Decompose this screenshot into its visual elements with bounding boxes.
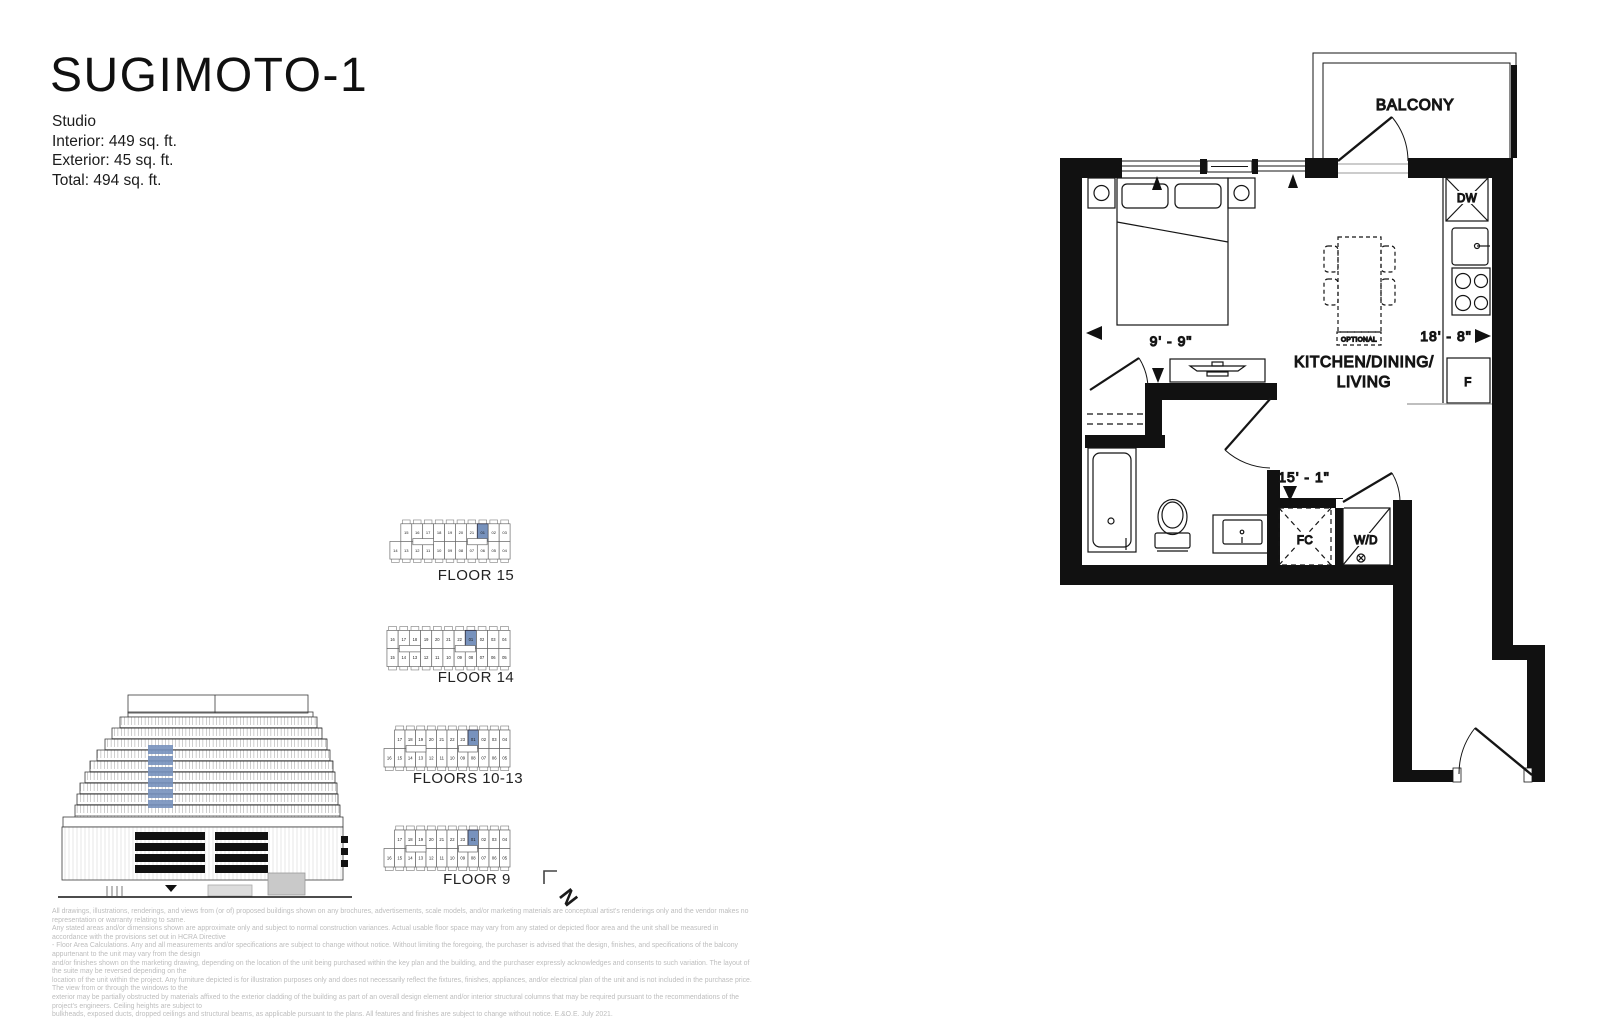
- arrow-east: [1475, 329, 1491, 343]
- balcony-tick: [467, 626, 475, 630]
- bathroom: [1088, 398, 1271, 553]
- key-plan-unit-number: 18: [408, 737, 413, 742]
- key-plan-unit-number: 10: [437, 548, 442, 553]
- disclaimer-line: location of the unit within the project.…: [52, 977, 752, 994]
- key-plan-unit-number: 16: [415, 530, 420, 535]
- key-plan-unit-number: 12: [429, 755, 434, 760]
- key-plan-unit-number: 17: [397, 737, 402, 742]
- balcony-tick: [400, 626, 408, 630]
- key-plan-floors-10-13: 1718192021222301020304161514131211100908…: [382, 722, 512, 772]
- balcony-door: [1338, 117, 1408, 173]
- key-plan-unit-number: 07: [480, 655, 485, 660]
- dim-hall-length: 15' - 1": [1278, 469, 1329, 485]
- key-plan-unit-number: 15: [397, 855, 402, 860]
- unit-type: Studio: [52, 112, 177, 132]
- bathroom-door: [1225, 398, 1271, 450]
- key-plan-unit-number: 06: [492, 855, 497, 860]
- core-notch: [413, 539, 434, 545]
- key-plan-unit-number: 05: [502, 655, 507, 660]
- key-plan-unit-number: 22: [450, 837, 455, 842]
- closet: [1087, 358, 1148, 424]
- washer-dryer-closet: [1336, 473, 1400, 565]
- kitchen-dining-living-label-1: KITCHEN/DINING/: [1294, 354, 1434, 371]
- interior-area: Interior: 449 sq. ft.: [52, 132, 177, 152]
- key-plan-unit-number: 18: [437, 530, 442, 535]
- lamp-left: [1094, 186, 1109, 201]
- key-plan-unit-number: 15: [397, 755, 402, 760]
- entry-notch: [459, 846, 478, 853]
- floor-plan: BALCONY: [1040, 30, 1560, 790]
- balcony-tick: [402, 520, 410, 524]
- balcony-tick: [459, 726, 467, 730]
- balcony-tick: [468, 520, 476, 524]
- balcony-label: BALCONY: [1376, 97, 1454, 114]
- optional-label: OPTIONAL: [1341, 337, 1377, 344]
- key-plan-unit-number: 02: [481, 837, 486, 842]
- disclaimer-line: exterior may be partially obstructed by …: [52, 994, 752, 1011]
- lamp-right: [1234, 186, 1249, 201]
- key-plan-unit-number: 04: [502, 637, 507, 642]
- entry-notch: [459, 746, 478, 753]
- disclaimer-line: - Floor Area Calculations. Any and all m…: [52, 942, 752, 959]
- key-plan-unit-number: 05: [502, 855, 507, 860]
- balcony-tick: [427, 826, 435, 830]
- balcony-tick: [448, 726, 456, 730]
- key-plan-unit-number: 05: [491, 548, 496, 553]
- balcony-tick: [501, 726, 509, 730]
- dim-living-length: 18' - 8": [1420, 328, 1471, 344]
- key-plan-unit-number: 21: [439, 837, 444, 842]
- balcony-tick: [406, 726, 414, 730]
- vanity: [1213, 515, 1268, 553]
- balcony-tick: [438, 726, 446, 730]
- balcony-tick: [389, 626, 397, 630]
- key-plan-unit-number: 13: [418, 755, 423, 760]
- arrow-south-1: [1152, 368, 1164, 383]
- balcony-tick: [406, 826, 414, 830]
- balcony-tick: [445, 626, 453, 630]
- balcony-tick: [501, 626, 509, 630]
- balcony-tick: [459, 826, 467, 830]
- key-plan-unit-number: 23: [460, 837, 465, 842]
- key-plan-unit-number: 18: [408, 837, 413, 842]
- key-plan-unit-number: 23: [460, 737, 465, 742]
- window-arrow-right: [1288, 174, 1298, 188]
- total-area: Total: 494 sq. ft.: [52, 171, 177, 191]
- exterior-area: Exterior: 45 sq. ft.: [52, 151, 177, 171]
- key-plan-unit-number: 08: [471, 755, 476, 760]
- key-plan-floor-14: 1617181920212201020304151413121110090807…: [385, 623, 512, 671]
- key-plan-unit-number: 19: [448, 530, 453, 535]
- entry-notch: [467, 539, 487, 545]
- key-plan-unit-number: 14: [401, 655, 406, 660]
- fridge-label: F: [1464, 377, 1471, 389]
- core-notch: [406, 746, 426, 753]
- key-plan-unit-number: 16: [387, 855, 392, 860]
- key-plan-label-floor-14: FLOOR 14: [391, 669, 561, 686]
- key-plan-unit-number: 20: [435, 637, 440, 642]
- disclaimer-line: bulkheads, exposed ducts, dropped ceilin…: [52, 1011, 752, 1018]
- key-plan-unit-number: 12: [429, 855, 434, 860]
- key-plan-unit-number: 03: [492, 837, 497, 842]
- dishwasher-label: DW: [1457, 193, 1477, 205]
- key-plan-unit-number: 06: [492, 755, 497, 760]
- balcony-tick: [422, 626, 430, 630]
- bathtub: [1088, 448, 1136, 552]
- entrance-detail: [107, 885, 177, 896]
- key-plan-unit-number: 14: [408, 755, 413, 760]
- balcony-tick: [427, 726, 435, 730]
- key-plan-unit-number: 14: [393, 548, 398, 553]
- key-plan-unit-number: 16: [390, 637, 395, 642]
- key-plan-unit-number: 08: [459, 548, 464, 553]
- key-plan-unit-number: 13: [404, 548, 409, 553]
- balcony-tick: [490, 520, 498, 524]
- balcony-tick: [417, 726, 425, 730]
- unit-stats: Studio Interior: 449 sq. ft. Exterior: 4…: [52, 112, 177, 190]
- podium-block-2: [208, 885, 252, 896]
- key-plan-unit-number: 10: [450, 855, 455, 860]
- key-plan-unit-number: 13: [418, 855, 423, 860]
- key-plan-unit-number: 08: [469, 655, 474, 660]
- balcony-tick: [424, 520, 432, 524]
- balcony-tick: [469, 726, 477, 730]
- key-plan-unit-number: 05: [502, 755, 507, 760]
- core-notch: [399, 646, 420, 652]
- key-plan-unit-number: 21: [439, 737, 444, 742]
- podium-block-1: [268, 873, 305, 895]
- key-plan-unit-number: 01: [481, 530, 486, 535]
- key-plan-unit-number: 21: [470, 530, 475, 535]
- key-plan-unit-number: 11: [435, 655, 440, 660]
- page-title: SUGIMOTO-1: [50, 48, 368, 103]
- entry-notch: [455, 646, 475, 652]
- balcony-tick: [456, 626, 464, 630]
- tv-console: [1170, 359, 1265, 382]
- key-plan-unit-number: 02: [480, 637, 485, 642]
- floorplan-sheet: SUGIMOTO-1 Studio Interior: 449 sq. ft. …: [0, 0, 1600, 1018]
- balcony-tick: [435, 520, 443, 524]
- balcony-tick: [433, 626, 441, 630]
- key-plan-unit-number: 10: [450, 755, 455, 760]
- key-plan-unit-number: 01: [469, 637, 474, 642]
- balcony-tick: [490, 726, 498, 730]
- balcony-tick: [480, 826, 488, 830]
- key-plan-unit-number: 20: [429, 737, 434, 742]
- key-plan-unit-number: 01: [471, 837, 476, 842]
- key-plan-unit-number: 09: [460, 755, 465, 760]
- balcony-tick: [446, 520, 454, 524]
- key-plan-unit-number: 07: [470, 548, 475, 553]
- entry-door: [1453, 728, 1532, 782]
- disclaimer-line: Any stated areas and/or dimensions shown…: [52, 925, 752, 942]
- kitchen-dining-living-label-2: LIVING: [1337, 374, 1391, 391]
- key-plan-unit-number: 01: [471, 737, 476, 742]
- balcony-tick: [438, 826, 446, 830]
- mechanical-penthouse: [128, 695, 308, 713]
- washer-dryer-label: W/D: [1354, 535, 1378, 547]
- core-notch: [406, 846, 426, 853]
- key-plan-unit-number: 18: [413, 637, 418, 642]
- fan-coil-label: FC: [1297, 535, 1313, 547]
- balcony-tick: [490, 826, 498, 830]
- balcony-tick: [501, 826, 509, 830]
- balcony-tick: [457, 520, 465, 524]
- key-plan-unit-number: 04: [502, 548, 507, 553]
- balcony-tick: [480, 726, 488, 730]
- dining-table-optional: [1324, 237, 1395, 345]
- key-plan-unit-number: 02: [481, 737, 486, 742]
- balcony-tick: [501, 520, 509, 524]
- key-plan-unit-number: 10: [446, 655, 451, 660]
- balcony-tick: [469, 826, 477, 830]
- key-plan-unit-number: 19: [418, 737, 423, 742]
- balcony-tick: [417, 826, 425, 830]
- key-plan-unit-number: 22: [450, 737, 455, 742]
- key-plan-unit-number: 11: [440, 755, 445, 760]
- key-plan-unit-number: 17: [397, 837, 402, 842]
- key-plan-unit-number: 09: [448, 548, 453, 553]
- key-plan-unit-number: 17: [401, 637, 406, 642]
- disclaimer: All drawings, illustrations, renderings,…: [52, 908, 752, 1018]
- key-plan-unit-number: 04: [502, 837, 507, 842]
- north-indicator: N: [535, 862, 590, 914]
- key-plan-unit-number: 14: [408, 855, 413, 860]
- tower-outline: [75, 717, 340, 817]
- arrow-west: [1086, 326, 1102, 340]
- balcony: BALCONY: [1313, 53, 1517, 158]
- key-plan-unit-number: 11: [440, 855, 445, 860]
- key-plan-unit-number: 20: [459, 530, 464, 535]
- balcony-tick: [478, 626, 486, 630]
- key-plan-unit-number: 21: [446, 637, 451, 642]
- key-plan-unit-number: 07: [481, 855, 486, 860]
- balcony-tick: [413, 520, 421, 524]
- balcony-tick: [448, 826, 456, 830]
- balcony-tick: [396, 726, 404, 730]
- key-plan-unit-number: 20: [429, 837, 434, 842]
- key-plan-unit-number: 19: [418, 837, 423, 842]
- key-plan-unit-number: 13: [413, 655, 418, 660]
- key-plan-unit-number: 03: [491, 637, 496, 642]
- closet-door: [1090, 358, 1139, 390]
- key-plan-unit-number: 06: [491, 655, 496, 660]
- north-label: N: [554, 885, 581, 911]
- key-plan-unit-number: 06: [481, 548, 486, 553]
- balcony-tick: [479, 520, 487, 524]
- key-plan-unit-number: 16: [387, 755, 392, 760]
- key-plan-unit-number: 03: [502, 530, 507, 535]
- key-plan-unit-number: 12: [415, 548, 420, 553]
- balcony-tick: [396, 826, 404, 830]
- building-elevation: [55, 670, 355, 900]
- key-plan-label-floor-15: FLOOR 15: [391, 567, 561, 584]
- balcony-tick: [489, 626, 497, 630]
- key-plan-unit-number: 02: [491, 530, 496, 535]
- key-plan-unit-number: 08: [471, 855, 476, 860]
- key-plan-unit-number: 15: [404, 530, 409, 535]
- key-plan-unit-number: 03: [492, 737, 497, 742]
- bed: [1088, 178, 1255, 325]
- key-plan-unit-number: 19: [424, 637, 429, 642]
- key-plan-unit-number: 04: [502, 737, 507, 742]
- transfer-slab: [63, 817, 343, 827]
- key-plan-unit-number: 09: [457, 655, 462, 660]
- washer-dryer-door: [1343, 473, 1392, 502]
- key-plan-unit-number: 09: [460, 855, 465, 860]
- balcony-tick: [411, 626, 419, 630]
- north-bracket: [544, 871, 557, 884]
- key-plan-floor-9: 1718192021222301020304161514131211100908…: [382, 823, 512, 871]
- window-band: [1122, 159, 1305, 174]
- key-plan-label-floors-10-13: FLOORS 10-13: [383, 770, 553, 787]
- key-plan-unit-number: 17: [426, 530, 431, 535]
- dim-sleeping-width: 9' - 9": [1150, 333, 1193, 349]
- key-plan-floor-15: 1516171819202101020314131211100908070605…: [388, 516, 512, 564]
- key-plan-unit-number: 12: [424, 655, 429, 660]
- key-plan-unit-number: 22: [457, 637, 462, 642]
- disclaimer-line: and/or finishes shown on the marketing d…: [52, 960, 752, 977]
- key-plan-unit-number: 15: [390, 655, 395, 660]
- key-plan-unit-number: 07: [481, 755, 486, 760]
- disclaimer-line: All drawings, illustrations, renderings,…: [52, 908, 752, 925]
